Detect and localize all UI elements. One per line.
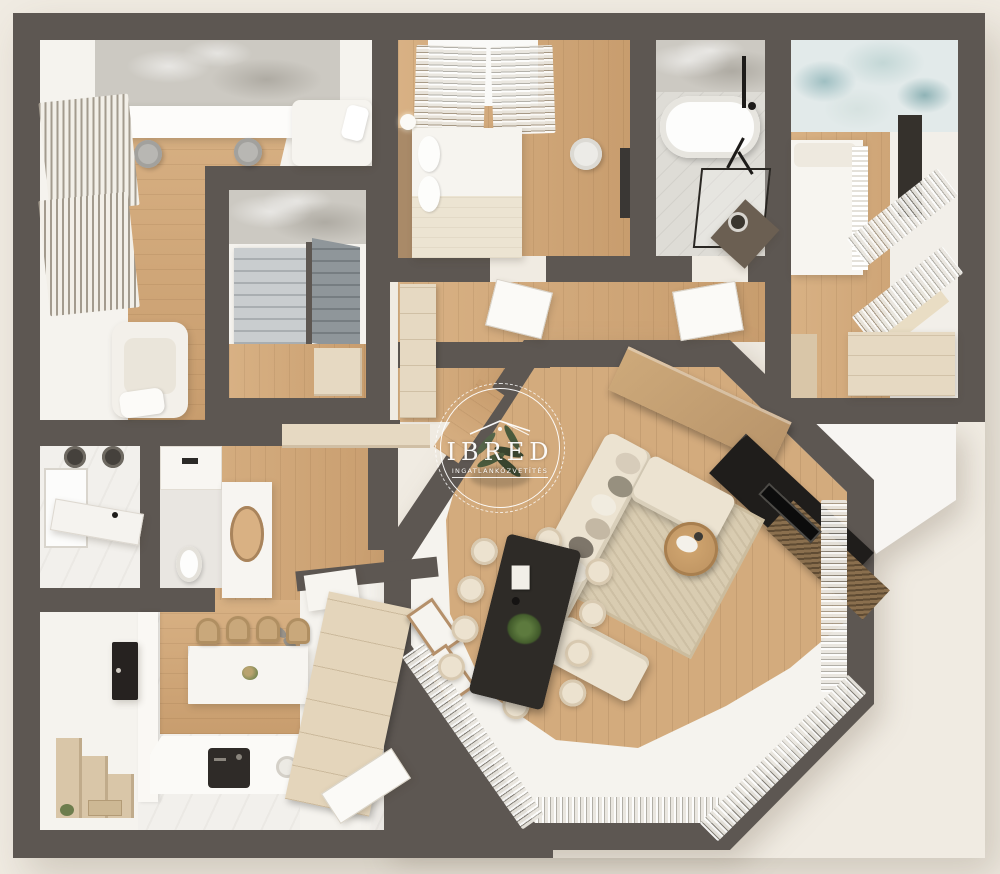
wall-sconce-icon	[64, 446, 86, 468]
wc-cabinet	[160, 446, 222, 490]
table-book	[512, 565, 530, 589]
stair-railing	[306, 242, 312, 350]
stair-closet	[314, 348, 362, 396]
dining-chair	[435, 651, 468, 684]
console-table	[282, 424, 430, 448]
office-chair	[234, 138, 262, 166]
house-roof-icon	[467, 418, 533, 438]
bed1-headboard	[398, 128, 412, 258]
armchair-cushion	[124, 338, 176, 394]
dining-chair	[449, 613, 482, 646]
cooktop	[208, 748, 250, 788]
bedside-lamp-icon	[400, 114, 416, 130]
stair-room-wall-left	[205, 166, 229, 420]
dining-chair	[454, 573, 487, 606]
curtain	[413, 45, 486, 135]
bed1-pillow	[418, 136, 440, 172]
wall-bedroom1-bathroom	[630, 13, 656, 258]
bed1-pillow	[418, 176, 440, 212]
staircase-upper-flight	[312, 238, 360, 352]
faucet-icon	[112, 512, 118, 518]
vanity-sink	[728, 212, 748, 232]
curtain	[536, 797, 719, 823]
dining-chair	[576, 597, 609, 630]
cabinet-handle-icon	[182, 458, 198, 464]
stair-back-wall	[229, 190, 366, 244]
tub-faucet-icon	[748, 102, 756, 110]
wall-top	[13, 13, 985, 40]
wall-bedroom2-bottom	[765, 398, 958, 424]
pantry-plant-icon	[60, 804, 74, 816]
wall-bathroom-bedroom2	[765, 13, 791, 424]
pantry-boxes	[88, 800, 122, 816]
towel-rail-icon	[742, 56, 746, 108]
bar-stool	[196, 618, 220, 644]
cooktop-knob-icon	[214, 758, 226, 761]
wall-bottom	[13, 830, 553, 858]
dresser	[848, 332, 955, 396]
stair-room-wall-bottom	[229, 398, 366, 420]
dining-chair	[582, 555, 615, 588]
wall-bedrooms-bottom-c	[748, 256, 791, 282]
wall-left-mid2	[13, 588, 215, 612]
utility-basin	[230, 506, 264, 562]
door-handle-icon	[116, 668, 121, 673]
toilet	[176, 546, 202, 582]
dining-chair	[562, 637, 595, 670]
curtain	[490, 45, 555, 135]
cooktop-knob-icon	[236, 754, 242, 760]
bed2-pillows	[794, 143, 856, 167]
staircase-lower-flight	[234, 248, 306, 344]
hall-wardrobe	[400, 284, 436, 418]
bar-stool	[256, 616, 280, 642]
dresser-side	[791, 334, 817, 398]
desk-chair	[570, 138, 602, 170]
dining-chair	[468, 535, 501, 568]
bar-stool	[286, 618, 310, 644]
floor-plan: IBRED INGATLANKÖZVETÍTÉS	[0, 0, 1000, 874]
wall-right	[958, 13, 985, 422]
wall-sconce-icon	[102, 446, 124, 468]
bar-stool	[226, 616, 250, 642]
coffee-table-decor-icon	[694, 532, 703, 541]
wall-bedrooms-bottom-a	[372, 256, 490, 282]
curtain	[821, 500, 847, 692]
brand-subtitle: INGATLANKÖZVETÍTÉS	[452, 467, 548, 478]
stair-room-wall-top	[205, 166, 390, 190]
dining-chair	[556, 677, 589, 710]
watermark-logo: IBRED INGATLANKÖZVETÍTÉS	[440, 388, 560, 508]
office-chair	[134, 140, 162, 168]
island-flowers-icon	[242, 666, 258, 680]
window-blinds-icon	[38, 192, 140, 317]
brand-name: IBRED	[447, 440, 554, 464]
wall-bedroom1-left	[372, 13, 398, 258]
tv-panel	[620, 148, 630, 218]
wall-bedrooms-bottom-b	[546, 256, 692, 282]
